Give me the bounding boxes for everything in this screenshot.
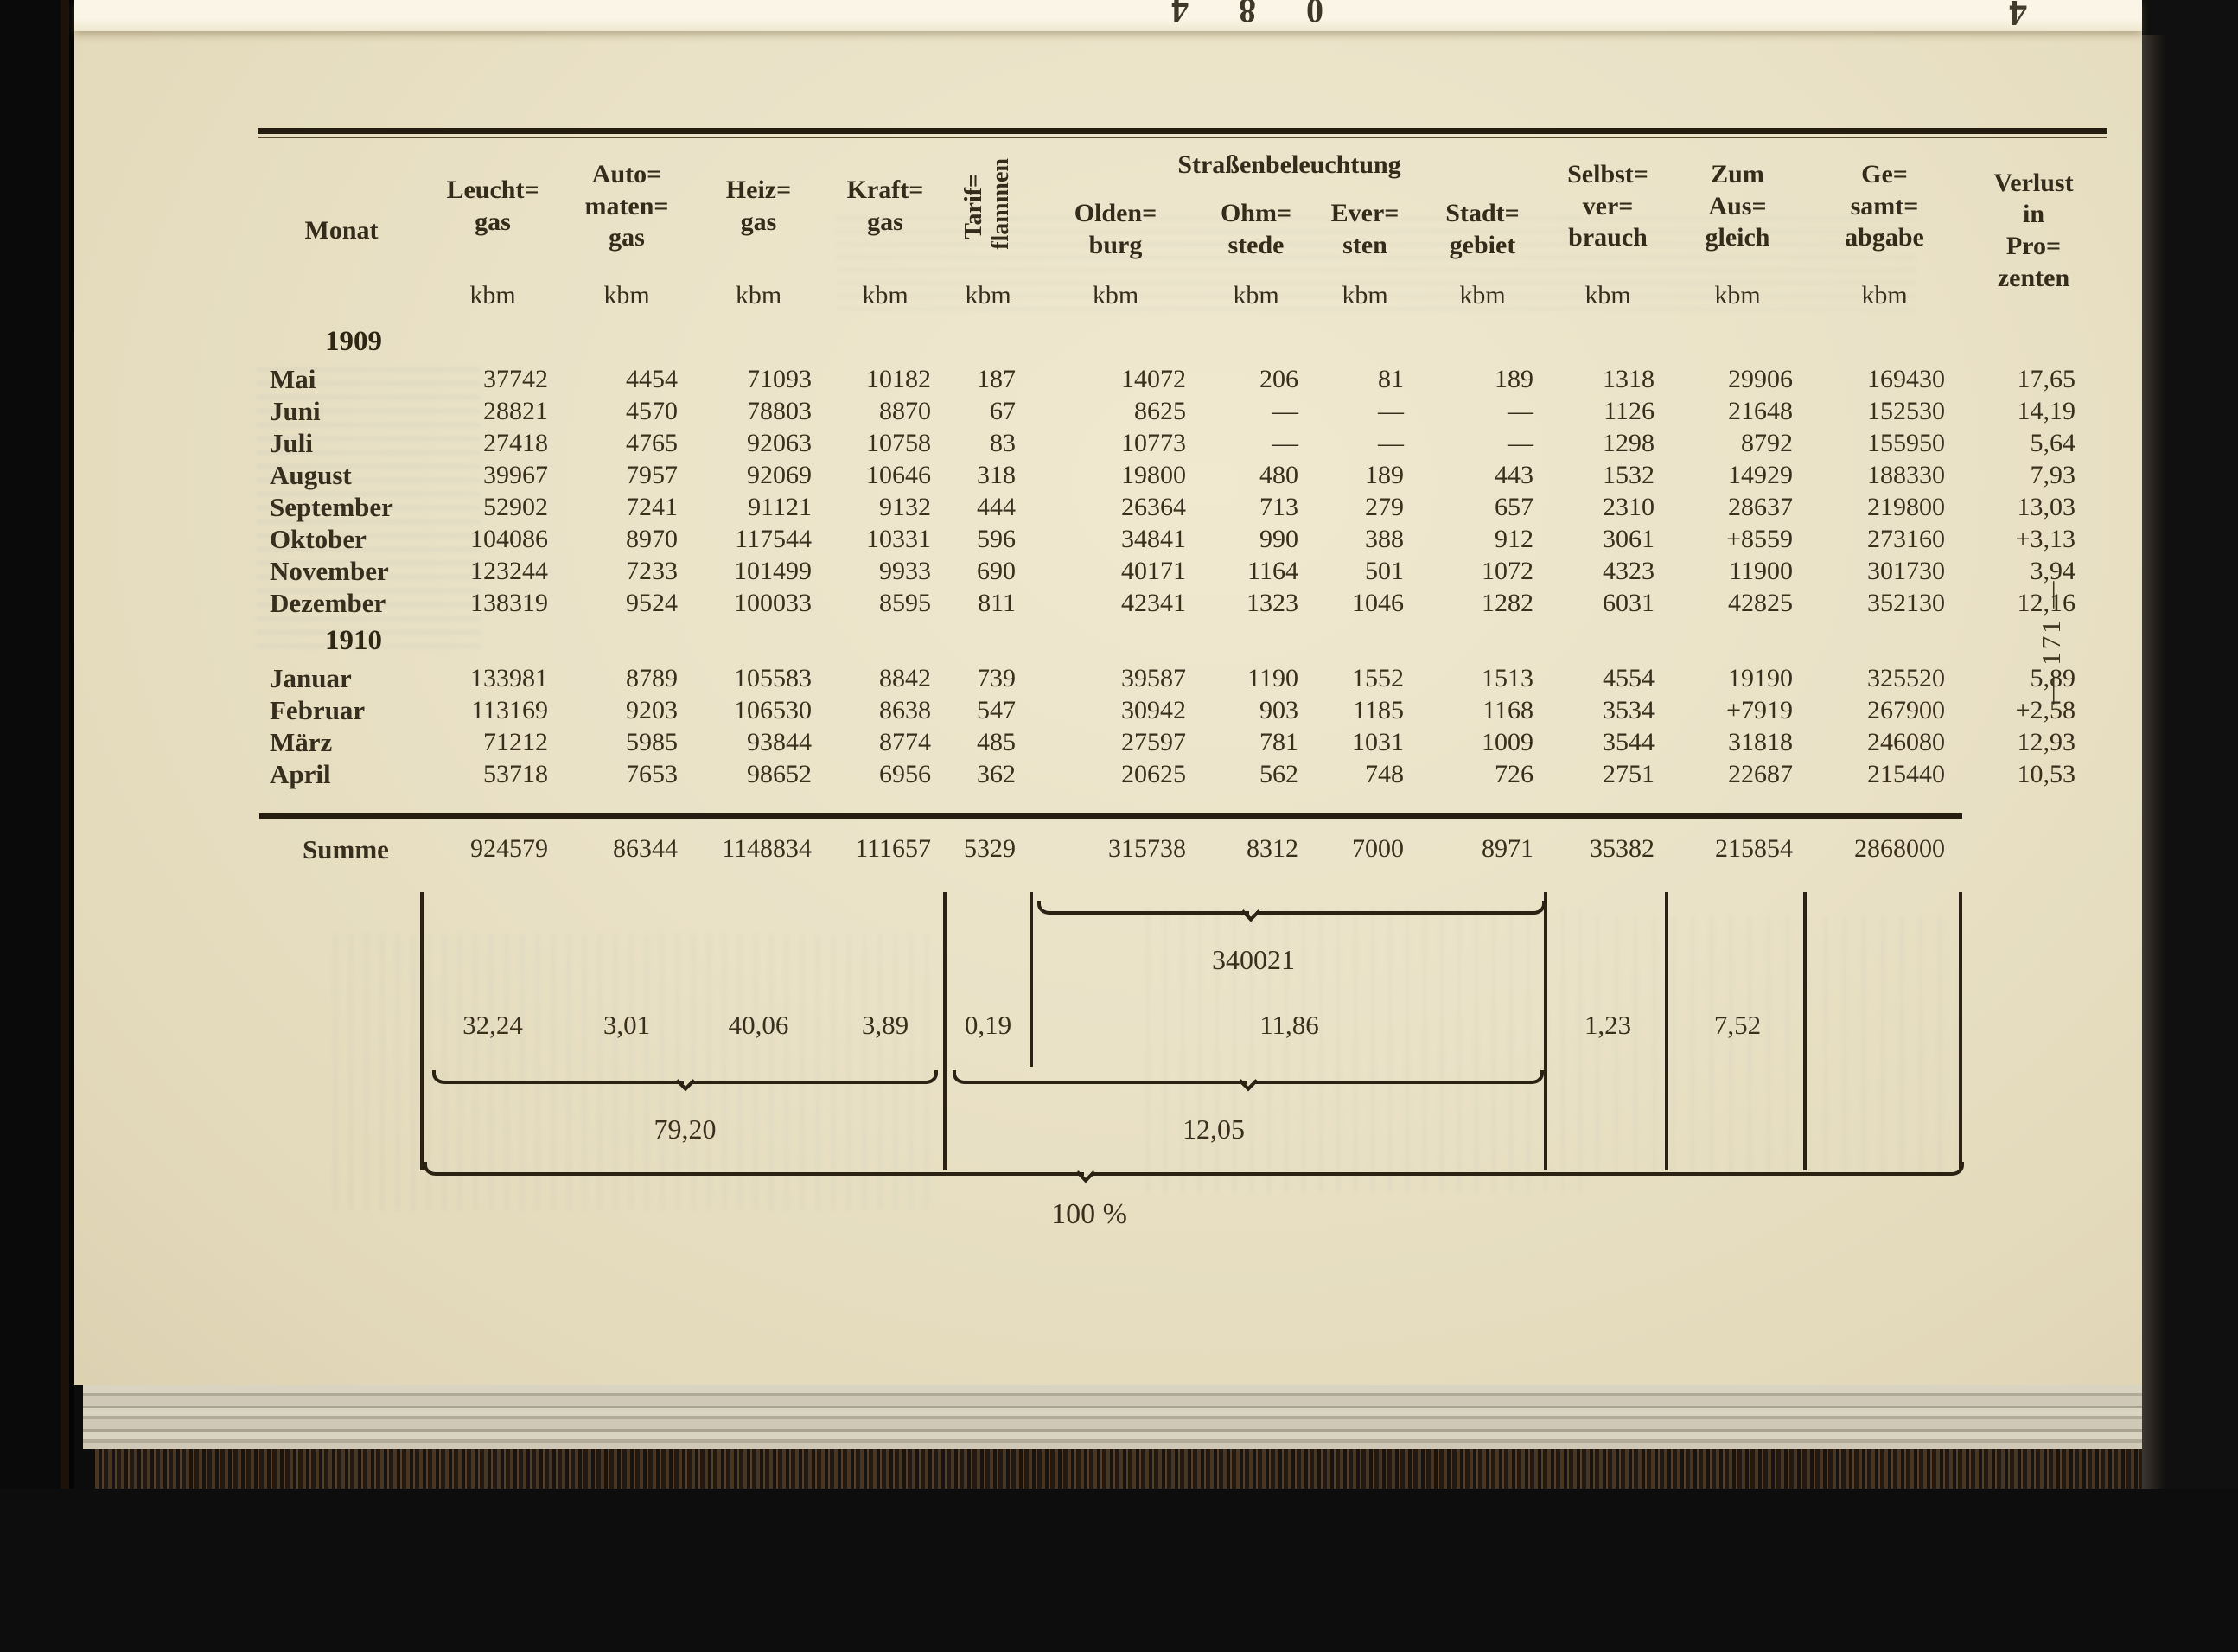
street-group-brace <box>953 1070 1544 1086</box>
value-cell: 28637 <box>1668 491 1807 523</box>
unit-label: kbm <box>1668 271 1807 320</box>
value-cell: 155950 <box>1807 427 1962 459</box>
value-cell: 9203 <box>562 694 692 726</box>
empty-cell <box>562 320 692 363</box>
value-cell: 71093 <box>692 363 826 395</box>
value-cell: 4554 <box>1547 662 1668 694</box>
book-cover-left-edge <box>0 0 74 1652</box>
value-cell: 8595 <box>826 587 945 619</box>
value-cell: 811 <box>945 587 1031 619</box>
col-group-strassenbeleuchtung: Straßenbeleuchtung <box>1031 142 1547 188</box>
empty-cell <box>1807 320 1962 363</box>
value-cell: 10331 <box>826 523 945 555</box>
value-cell: 1323 <box>1200 587 1312 619</box>
table-body: 1909Mai377424454710931018218714072206811… <box>259 320 2105 896</box>
value-cell: 188330 <box>1807 459 1962 491</box>
value-cell: 1298 <box>1547 427 1668 459</box>
value-cell: 1168 <box>1418 694 1547 726</box>
spacer-cell <box>945 790 1031 816</box>
percent-kraftgas: 3,89 <box>826 1010 945 1041</box>
value-cell: 52902 <box>424 491 562 523</box>
value-cell: 7653 <box>562 758 692 790</box>
value-cell: 8638 <box>826 694 945 726</box>
value-cell: 1532 <box>1547 459 1668 491</box>
value-cell: 9132 <box>826 491 945 523</box>
col-header-stadtgebiet: Stadt= gebiet <box>1418 188 1547 271</box>
spacer-cell <box>259 790 424 816</box>
page-curl-top-edge: 5 3 2 3 3 3 3 6 6 0 2 0 8 4 4 <box>74 0 2142 31</box>
value-cell: 20625 <box>1031 758 1200 790</box>
grand-total-brace <box>424 1162 1964 1177</box>
value-cell: 101499 <box>692 555 826 587</box>
month-label: April <box>259 758 424 790</box>
empty-cell <box>945 619 1031 662</box>
col-header-leuchtgas: Leucht= gas <box>424 142 562 271</box>
value-cell: 9933 <box>826 555 945 587</box>
value-cell: 12,93 <box>1962 726 2105 758</box>
value-cell: 189 <box>1312 459 1418 491</box>
value-cell: 34841 <box>1031 523 1200 555</box>
table-rule-extension <box>1959 892 1962 1170</box>
value-cell: 133981 <box>424 662 562 694</box>
value-cell: 42825 <box>1668 587 1807 619</box>
percent-leuchtgas: 32,24 <box>424 1010 562 1041</box>
spacer-cell <box>1200 790 1312 816</box>
value-cell: 13,03 <box>1962 491 2105 523</box>
value-cell: 596 <box>945 523 1031 555</box>
value-cell: 169430 <box>1807 363 1962 395</box>
empty-cell <box>945 320 1031 363</box>
value-cell: 123244 <box>424 555 562 587</box>
month-label: Februar <box>259 694 424 726</box>
value-cell: 8789 <box>562 662 692 694</box>
value-cell: 7241 <box>562 491 692 523</box>
summe-cell: 8312 <box>1200 816 1312 896</box>
value-cell: 1009 <box>1418 726 1547 758</box>
value-cell: 1552 <box>1312 662 1418 694</box>
value-cell: +7919 <box>1668 694 1807 726</box>
value-cell: 273160 <box>1807 523 1962 555</box>
summe-cell <box>1962 816 2105 896</box>
value-cell: 2310 <box>1547 491 1668 523</box>
value-cell: 27418 <box>424 427 562 459</box>
value-cell: 206 <box>1200 363 1312 395</box>
value-cell: — <box>1200 395 1312 427</box>
value-cell: 713 <box>1200 491 1312 523</box>
value-cell: 42341 <box>1031 587 1200 619</box>
value-cell: 1046 <box>1312 587 1418 619</box>
value-cell: 443 <box>1418 459 1547 491</box>
percent-selbstverbrauch: 1,23 <box>1547 1010 1668 1041</box>
spacer-cell <box>1547 790 1668 816</box>
gas-statistics-table: Monat Leucht= gas Auto= maten= gas Heiz=… <box>259 142 2105 896</box>
col-header-oldenburg: Olden= burg <box>1031 188 1200 271</box>
page-curl-digits: 5 3 2 3 3 3 3 6 6 0 2 0 8 4 <box>606 0 1323 31</box>
empty-cell <box>1547 320 1668 363</box>
value-cell: 1513 <box>1418 662 1547 694</box>
value-cell: 189 <box>1418 363 1547 395</box>
value-cell: 3534 <box>1547 694 1668 726</box>
unit-label: kbm <box>1807 271 1962 320</box>
value-cell: 5,64 <box>1962 427 2105 459</box>
value-cell: 10646 <box>826 459 945 491</box>
spacer-cell <box>692 790 826 816</box>
value-cell: 3544 <box>1547 726 1668 758</box>
value-cell: 219800 <box>1807 491 1962 523</box>
col-header-selbstverbrauch: Selbst= ver= brauch <box>1547 142 1668 271</box>
value-cell: 31818 <box>1668 726 1807 758</box>
value-cell: 318 <box>945 459 1031 491</box>
value-cell: 19190 <box>1668 662 1807 694</box>
gas-group-brace <box>432 1070 938 1086</box>
value-cell: 138319 <box>424 587 562 619</box>
month-label: November <box>259 555 424 587</box>
value-cell: 5985 <box>562 726 692 758</box>
unit-label: kbm <box>945 271 1031 320</box>
value-cell: 267900 <box>1807 694 1962 726</box>
value-cell: 562 <box>1200 758 1312 790</box>
empty-cell <box>1418 320 1547 363</box>
value-cell: 325520 <box>1807 662 1962 694</box>
value-cell: 10758 <box>826 427 945 459</box>
percent-automatengas: 3,01 <box>562 1010 692 1041</box>
spacer-cell <box>1418 790 1547 816</box>
value-cell: 739 <box>945 662 1031 694</box>
value-cell: 4323 <box>1547 555 1668 587</box>
value-cell: 990 <box>1200 523 1312 555</box>
col-header-eversten: Ever= sten <box>1312 188 1418 271</box>
month-label: September <box>259 491 424 523</box>
empty-cell <box>1312 320 1418 363</box>
value-cell: 10773 <box>1031 427 1200 459</box>
unit-label: kbm <box>1547 271 1668 320</box>
summe-label: Summe <box>259 816 424 896</box>
value-cell: — <box>1418 395 1547 427</box>
spacer-cell <box>1668 790 1807 816</box>
value-cell: 1190 <box>1200 662 1312 694</box>
percent-strassenbeleuchtung: 11,86 <box>1031 1010 1547 1041</box>
value-cell: 912 <box>1418 523 1547 555</box>
year-label: 1909 <box>259 320 424 363</box>
value-cell: 30942 <box>1031 694 1200 726</box>
value-cell: 6031 <box>1547 587 1668 619</box>
unit-label: kbm <box>1031 271 1200 320</box>
summe-cell: 35382 <box>1547 816 1668 896</box>
value-cell: — <box>1312 395 1418 427</box>
percent-zum-ausgleich: 7,52 <box>1668 1010 1807 1041</box>
value-cell: 26364 <box>1031 491 1200 523</box>
unit-label: kbm <box>826 271 945 320</box>
value-cell: 11900 <box>1668 555 1807 587</box>
empty-cell <box>826 320 945 363</box>
empty-cell <box>1668 619 1807 662</box>
empty-cell <box>826 619 945 662</box>
value-cell: 6956 <box>826 758 945 790</box>
percent-tarifflammen: 0,19 <box>945 1010 1031 1041</box>
value-cell: 92069 <box>692 459 826 491</box>
empty-cell <box>1668 320 1807 363</box>
summe-cell: 1148834 <box>692 816 826 896</box>
value-cell: 12,16 <box>1962 587 2105 619</box>
ghost-showthrough <box>1596 916 1959 1176</box>
spacer-cell <box>1031 790 1200 816</box>
value-cell: 388 <box>1312 523 1418 555</box>
percent-heizgas: 40,06 <box>692 1010 826 1041</box>
value-cell: 1185 <box>1312 694 1418 726</box>
summe-cell: 315738 <box>1031 816 1200 896</box>
empty-cell <box>1312 619 1418 662</box>
value-cell: 7957 <box>562 459 692 491</box>
value-cell: 362 <box>945 758 1031 790</box>
value-cell: 91121 <box>692 491 826 523</box>
scan-background <box>0 1489 2238 1652</box>
value-cell: 480 <box>1200 459 1312 491</box>
value-cell: 22687 <box>1668 758 1807 790</box>
value-cell: 1031 <box>1312 726 1418 758</box>
value-cell: — <box>1200 427 1312 459</box>
value-cell: 117544 <box>692 523 826 555</box>
value-cell: 187 <box>945 363 1031 395</box>
value-cell: 485 <box>945 726 1031 758</box>
value-cell: 21648 <box>1668 395 1807 427</box>
empty-cell <box>424 619 562 662</box>
rotated-label: Tarif= flammen <box>961 163 1015 250</box>
book-scan: 5 3 2 3 3 3 3 6 6 0 2 0 8 4 4 — 171 — Mo… <box>0 0 2238 1652</box>
value-cell: 8774 <box>826 726 945 758</box>
unit-label: kbm <box>424 271 562 320</box>
street-total: 340021 <box>1046 944 1461 976</box>
value-cell: 657 <box>1418 491 1547 523</box>
value-cell: 1126 <box>1547 395 1668 427</box>
col-header-automatengas: Auto= maten= gas <box>562 142 692 271</box>
table-top-double-rule <box>258 128 2107 140</box>
empty-cell <box>1200 320 1312 363</box>
value-cell: 14072 <box>1031 363 1200 395</box>
month-label: Januar <box>259 662 424 694</box>
value-cell: 8970 <box>562 523 692 555</box>
value-cell: 3,94 <box>1962 555 2105 587</box>
value-cell: 17,65 <box>1962 363 2105 395</box>
unit-label: kbm <box>692 271 826 320</box>
value-cell: +3,13 <box>1962 523 2105 555</box>
spacer-cell <box>1807 790 1962 816</box>
value-cell: 152530 <box>1807 395 1962 427</box>
page-edges-stack <box>83 1385 2142 1449</box>
value-cell: 215440 <box>1807 758 1962 790</box>
col-header-kraftgas: Kraft= gas <box>826 142 945 271</box>
spacer-cell <box>1962 790 2105 816</box>
value-cell: 83 <box>945 427 1031 459</box>
spacer-cell <box>562 790 692 816</box>
month-label: Dezember <box>259 587 424 619</box>
street-sum-brace <box>1037 901 1546 916</box>
col-header-tarifflammen: Tarif= flammen <box>945 142 1031 271</box>
value-cell: — <box>1418 427 1547 459</box>
value-cell: 113169 <box>424 694 562 726</box>
value-cell: 1282 <box>1418 587 1547 619</box>
empty-cell <box>692 320 826 363</box>
value-cell: 501 <box>1312 555 1418 587</box>
value-cell: 14929 <box>1668 459 1807 491</box>
value-cell: 4454 <box>562 363 692 395</box>
value-cell: 9524 <box>562 587 692 619</box>
month-label: Juli <box>259 427 424 459</box>
value-cell: 98652 <box>692 758 826 790</box>
empty-cell <box>1031 320 1200 363</box>
empty-cell <box>1962 619 2105 662</box>
spacer-cell <box>826 790 945 816</box>
value-cell: 81 <box>1312 363 1418 395</box>
value-cell: 726 <box>1418 758 1547 790</box>
value-cell: 301730 <box>1807 555 1962 587</box>
col-header-heizgas: Heiz= gas <box>692 142 826 271</box>
value-cell: 37742 <box>424 363 562 395</box>
value-cell: 78803 <box>692 395 826 427</box>
value-cell: 92063 <box>692 427 826 459</box>
value-cell: 14,19 <box>1962 395 2105 427</box>
value-cell: 10182 <box>826 363 945 395</box>
value-cell: 39967 <box>424 459 562 491</box>
col-header-ohmstede: Ohm= stede <box>1200 188 1312 271</box>
unit-label: kbm <box>1418 271 1547 320</box>
value-cell: 444 <box>945 491 1031 523</box>
value-cell: 4570 <box>562 395 692 427</box>
value-cell: 8625 <box>1031 395 1200 427</box>
value-cell: 105583 <box>692 662 826 694</box>
month-label: Mai <box>259 363 424 395</box>
empty-cell <box>562 619 692 662</box>
empty-cell <box>1200 619 1312 662</box>
month-label: Oktober <box>259 523 424 555</box>
value-cell: 29906 <box>1668 363 1807 395</box>
value-cell: 3061 <box>1547 523 1668 555</box>
value-cell: 1072 <box>1418 555 1547 587</box>
value-cell: 19800 <box>1031 459 1200 491</box>
col-header-gesamtabgabe: Ge= samt= abgabe <box>1807 142 1962 271</box>
value-cell: 39587 <box>1031 662 1200 694</box>
table-header: Monat Leucht= gas Auto= maten= gas Heiz=… <box>259 142 2105 320</box>
value-cell: 53718 <box>424 758 562 790</box>
value-cell: 8870 <box>826 395 945 427</box>
empty-cell <box>1962 320 2105 363</box>
col-header-zum-ausgleich: Zum Aus= gleich <box>1668 142 1807 271</box>
value-cell: 40171 <box>1031 555 1200 587</box>
gas-group-total: 79,20 <box>432 1113 938 1145</box>
book-spine-highlight <box>2142 35 2165 1652</box>
empty-cell <box>424 320 562 363</box>
value-cell: 67 <box>945 395 1031 427</box>
month-label: Juni <box>259 395 424 427</box>
value-cell: 2751 <box>1547 758 1668 790</box>
value-cell: 27597 <box>1031 726 1200 758</box>
value-cell: 106530 <box>692 694 826 726</box>
empty-cell <box>1031 619 1200 662</box>
value-cell: 28821 <box>424 395 562 427</box>
value-cell: 1318 <box>1547 363 1668 395</box>
spacer-cell <box>424 790 562 816</box>
summe-cell: 5329 <box>945 816 1031 896</box>
value-cell: 4765 <box>562 427 692 459</box>
value-cell: 104086 <box>424 523 562 555</box>
month-label: März <box>259 726 424 758</box>
page-curl-corner-mark: 4 <box>2009 0 2027 31</box>
summe-cell: 111657 <box>826 816 945 896</box>
value-cell: 547 <box>945 694 1031 726</box>
book-cover-bottom-edge <box>95 1449 2142 1489</box>
value-cell: 7,93 <box>1962 459 2105 491</box>
grand-total-percent: 100 % <box>985 1198 1193 1231</box>
value-cell: 279 <box>1312 491 1418 523</box>
spacer-cell <box>1312 790 1418 816</box>
empty-cell <box>1807 619 1962 662</box>
summe-cell: 924579 <box>424 816 562 896</box>
empty-cell <box>692 619 826 662</box>
value-cell: 781 <box>1200 726 1312 758</box>
year-label: 1910 <box>259 619 424 662</box>
value-cell: 5,89 <box>1962 662 2105 694</box>
value-cell: 690 <box>945 555 1031 587</box>
value-cell: 8792 <box>1668 427 1807 459</box>
value-cell: 71212 <box>424 726 562 758</box>
summe-cell: 8971 <box>1418 816 1547 896</box>
unit-label: kbm <box>1200 271 1312 320</box>
unit-label: kbm <box>562 271 692 320</box>
summe-cell: 86344 <box>562 816 692 896</box>
street-group-total: 12,05 <box>918 1113 1509 1145</box>
value-cell: 246080 <box>1807 726 1962 758</box>
value-cell: +8559 <box>1668 523 1807 555</box>
empty-cell <box>1418 619 1547 662</box>
value-cell: — <box>1312 427 1418 459</box>
month-label: August <box>259 459 424 491</box>
value-cell: 100033 <box>692 587 826 619</box>
value-cell: 10,53 <box>1962 758 2105 790</box>
value-cell: 93844 <box>692 726 826 758</box>
summe-cell: 7000 <box>1312 816 1418 896</box>
value-cell: 748 <box>1312 758 1418 790</box>
col-header-monat: Monat <box>259 142 424 320</box>
col-header-verlust: Verlust in Pro= zenten <box>1962 142 2105 320</box>
value-cell: 903 <box>1200 694 1312 726</box>
summe-cell: 215854 <box>1668 816 1807 896</box>
value-cell: 8842 <box>826 662 945 694</box>
value-cell: 7233 <box>562 555 692 587</box>
summe-cell: 2868000 <box>1807 816 1962 896</box>
empty-cell <box>1547 619 1668 662</box>
value-cell: 352130 <box>1807 587 1962 619</box>
value-cell: 1164 <box>1200 555 1312 587</box>
value-cell: +2,58 <box>1962 694 2105 726</box>
unit-label: kbm <box>1312 271 1418 320</box>
